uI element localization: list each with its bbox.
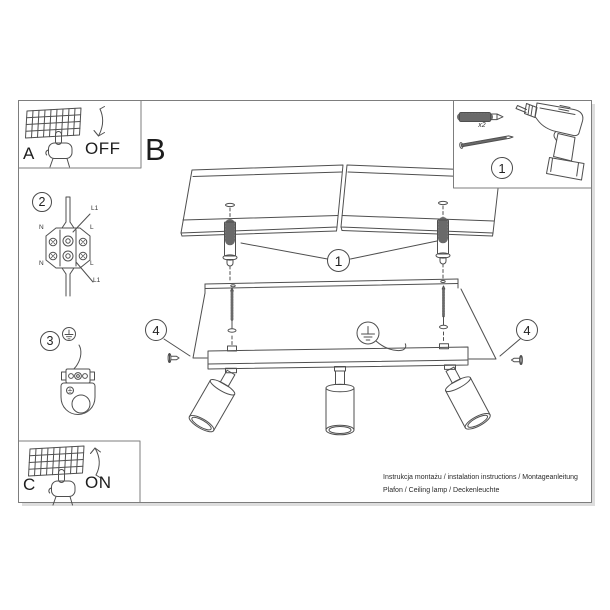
switch-on-box xyxy=(19,441,141,503)
wire-label-l-bottom: L xyxy=(90,261,94,268)
wire-label-l1-top: L1 xyxy=(91,206,98,213)
parts-box-callout: 1 xyxy=(491,157,513,179)
diagram-canvas xyxy=(0,0,610,610)
dowel-quantity-label: x2 xyxy=(474,122,490,129)
section-b-label: B xyxy=(145,134,166,165)
plug-screw-callout: 1 xyxy=(327,249,350,272)
section-c-label: C xyxy=(23,476,35,493)
wire-label-n-bottom: N xyxy=(39,261,44,268)
wire-label-l1-bottom: L1 xyxy=(93,278,100,285)
installation-manual-page: A OFF B C ON 2 3 1 1 4 4 x2 L1 N L N L L… xyxy=(0,0,610,610)
step3-callout: 3 xyxy=(40,331,60,351)
wire-label-n-top: N xyxy=(39,225,44,232)
side-screw-right-callout: 4 xyxy=(516,319,538,341)
footer-line-2: Plafon / Ceiling lamp / Deckenleuchte xyxy=(383,484,578,497)
footer-line-1: Instrukcja montażu / instalation instruc… xyxy=(383,471,578,484)
section-a-label: A xyxy=(23,145,34,162)
wire-label-l-top: L xyxy=(90,225,94,232)
on-label: ON xyxy=(85,474,112,491)
off-label: OFF xyxy=(85,140,121,157)
step2-callout: 2 xyxy=(32,192,52,212)
side-screw-left-callout: 4 xyxy=(145,319,167,341)
footer-text: Instrukcja montażu / instalation instruc… xyxy=(383,471,578,497)
